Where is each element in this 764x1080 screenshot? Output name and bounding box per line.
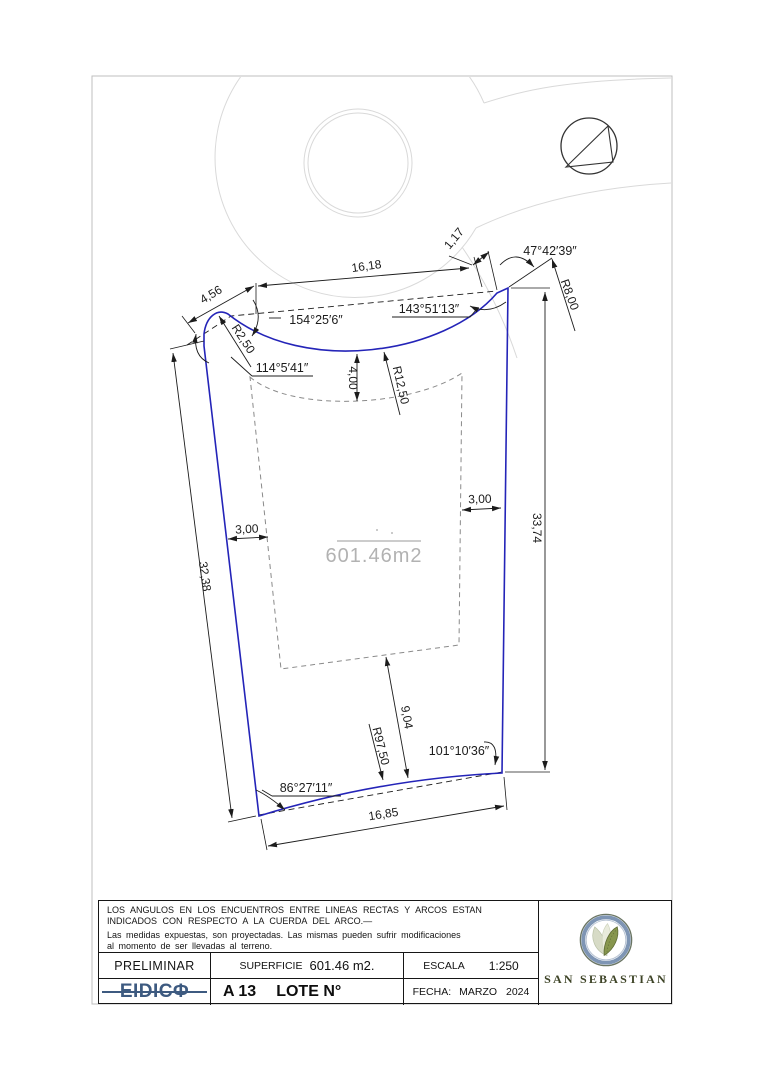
building-envelope	[250, 373, 462, 669]
san-sebastian-logo-icon	[577, 911, 635, 969]
escala-cell: ESCALA 1:250	[404, 953, 539, 979]
lot-code: A 13	[223, 983, 256, 1001]
lot-plan-page: 601.46m2 16,18 1,17 4,56 32,38 33,74 16,…	[0, 0, 764, 1080]
dim-r-back: R97,50	[369, 726, 392, 767]
road-edge-side	[462, 247, 517, 358]
brand-name: SAN SEBASTIAN	[544, 972, 668, 987]
dim-bottom-chord: 16,85	[367, 805, 399, 824]
dim-front-offset: 4,00	[346, 366, 360, 390]
superficie-label: SUPERFICIE	[239, 960, 302, 972]
dim-depth-mid: 9,04	[398, 705, 416, 731]
lot-id-cell: A 13 LOTE N°	[211, 979, 404, 1005]
eidico-logo-cell: EIDICΦ	[99, 979, 211, 1005]
superficie-value: 601.46 m2.	[309, 958, 374, 973]
eidico-strike-line	[102, 991, 207, 993]
fecha-label: FECHA:	[413, 986, 452, 998]
fecha-cell: FECHA: MARZO 2024	[404, 979, 539, 1005]
dim-left-side: 32,38	[196, 561, 214, 593]
dim-r-front: R12,50	[390, 365, 412, 406]
dim-right-side: 33,74	[530, 513, 544, 543]
area-label: 601.46m2	[326, 545, 423, 567]
north-symbol-icon	[561, 118, 617, 174]
angle-corner-ext: 47°42′39″	[523, 244, 577, 258]
dim-top-left-seg: 4,56	[197, 282, 225, 306]
escala-label: ESCALA	[423, 960, 464, 972]
road-edge-upper	[484, 78, 672, 103]
brand-cell: SAN SEBASTIAN	[539, 901, 673, 1005]
fecha-value: MARZO 2024	[459, 986, 529, 998]
culdesac-island-inner	[308, 113, 408, 213]
title-block: LOS ANGULOS EN LOS ENCUENTROS ENTRE LINE…	[98, 900, 672, 1004]
culdesac-island-outer	[304, 109, 412, 217]
angle-labels: 47°42′39″ 154°25′6″ 143°51′13″ 114°5′41″…	[256, 244, 578, 795]
dim-left-offset: 3,00	[235, 521, 259, 536]
escala-value: 1:250	[489, 959, 519, 973]
sheet-frame	[92, 76, 672, 1004]
note-angles: LOS ANGULOS EN LOS ENCUENTROS ENTRE LINE…	[107, 905, 482, 927]
status-label: PRELIMINAR	[114, 959, 194, 973]
note-measures: Las medidas expuestas, son proyectadas. …	[107, 930, 461, 952]
eidico-logo: EIDICΦ	[99, 979, 210, 1005]
status-cell: PRELIMINAR	[99, 953, 211, 979]
road-edge-lower	[476, 183, 672, 228]
lot-number-label: LOTE N°	[276, 983, 341, 1001]
dim-top-chord: 16,18	[351, 257, 383, 275]
angle-back-right: 101°10′36″	[429, 744, 490, 758]
angle-left-top: 114°5′41″	[256, 361, 309, 375]
angle-back-left: 86°27′11″	[280, 781, 333, 795]
angle-front-left: 154°25′6″	[289, 313, 343, 327]
angle-front-right: 143°51′13″	[399, 302, 460, 316]
superficie-cell: SUPERFICIE 601.46 m2.	[211, 953, 404, 979]
dim-r-corner-right: R8,00	[558, 277, 582, 312]
dim-right-offset: 3,00	[468, 492, 492, 507]
notes-cell: LOS ANGULOS EN LOS ENCUENTROS ENTRE LINE…	[99, 901, 539, 953]
culdesac-outer-curve	[215, 18, 484, 298]
dimension-labels: 16,18 1,17 4,56 32,38 33,74 16,85 9,04 4…	[196, 225, 582, 824]
area-annotation: 601.46m2	[326, 529, 423, 567]
